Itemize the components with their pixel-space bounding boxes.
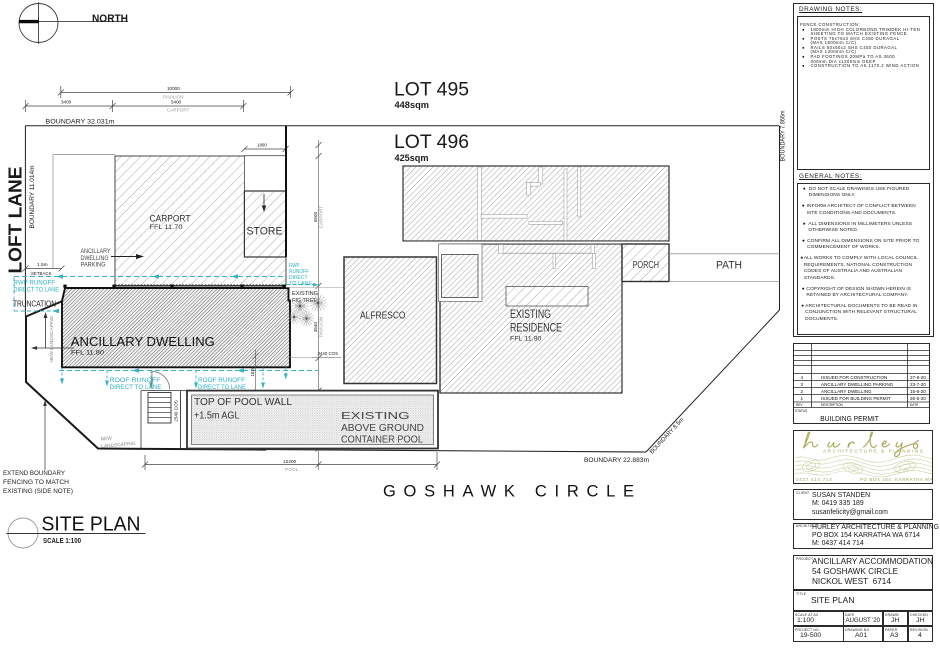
- svg-text:TOP OF POOL WALL: TOP OF POOL WALL: [194, 397, 292, 408]
- svg-text:ROOF RUNOFF: ROOF RUNOFF: [198, 378, 245, 384]
- svg-text:3400: 3400: [61, 100, 72, 105]
- svg-text:BUILDING PERMIT: BUILDING PERMIT: [820, 414, 879, 423]
- svg-text:3440 COS: 3440 COS: [318, 351, 339, 356]
- svg-text:FENCING TO MATCH: FENCING TO MATCH: [3, 479, 69, 486]
- svg-text:26-5-20: 26-5-20: [910, 396, 926, 401]
- svg-text:PARKING: PARKING: [81, 263, 106, 269]
- svg-text:3: 3: [801, 382, 804, 387]
- svg-text:SETBACK: SETBACK: [31, 271, 52, 276]
- svg-text:POOL: POOL: [285, 467, 299, 473]
- svg-text:EXISTING: EXISTING: [510, 309, 551, 321]
- svg-text:LOFT LANE: LOFT LANE: [6, 167, 26, 274]
- svg-text:5400: 5400: [171, 100, 182, 105]
- svg-text:PO BOX 154, KARRATHA WA 6714: PO BOX 154, KARRATHA WA 6714: [860, 477, 933, 482]
- svg-text:STORE: STORE: [247, 226, 283, 238]
- svg-text:15-6-20: 15-6-20: [910, 389, 926, 394]
- svg-text:CARPORT: CARPORT: [167, 107, 190, 112]
- svg-text:NORTH: NORTH: [92, 13, 128, 25]
- svg-text:1820: 1820: [250, 366, 255, 377]
- svg-text:EXTEND BOUNDARY: EXTEND BOUNDARY: [3, 470, 66, 477]
- svg-text:448sqm: 448sqm: [395, 100, 430, 110]
- svg-text:DIRECT TO LANE: DIRECT TO LANE: [110, 385, 162, 391]
- svg-text:BOUNDARY 11.014m: BOUNDARY 11.014m: [29, 166, 36, 229]
- svg-text:+1.5m AGL: +1.5m AGL: [194, 411, 240, 422]
- svg-text:DESCRIPTION: DESCRIPTION: [821, 403, 843, 407]
- svg-text:ANCILLARY DWELLING: ANCILLARY DWELLING: [71, 334, 215, 349]
- svg-text:PORCH: PORCH: [633, 259, 660, 271]
- svg-text:NEW: NEW: [100, 436, 112, 443]
- svg-text:DIRECT TO LANE: DIRECT TO LANE: [14, 288, 60, 294]
- svg-text:ISSUED FOR CONSTRUCTION: ISSUED FOR CONSTRUCTION: [821, 375, 887, 380]
- svg-text:BOUNDARY 7.866m: BOUNDARY 7.866m: [781, 110, 787, 161]
- svg-text:LOT 496: LOT 496: [394, 131, 469, 153]
- svg-text:EXISTING (SIDE NOTE): EXISTING (SIDE NOTE): [3, 488, 73, 495]
- svg-text:1.5m: 1.5m: [37, 262, 48, 268]
- svg-text:BOUNDARY 32.031m: BOUNDARY 32.031m: [46, 119, 115, 126]
- svg-text:ROOF RUNOFF: ROOF RUNOFF: [110, 378, 161, 384]
- svg-text:EXISTING: EXISTING: [292, 291, 318, 297]
- svg-text:TRUNCATION: TRUNCATION: [13, 300, 56, 309]
- svg-text:ISSUED FOR BUILDING PERMIT: ISSUED FOR BUILDING PERMIT: [821, 396, 891, 401]
- svg-text:GOSHAWK CIRCLE: GOSHAWK CIRCLE: [383, 483, 634, 501]
- svg-text:EXISTING: EXISTING: [341, 410, 410, 422]
- svg-text:STATUS: STATUS: [795, 409, 807, 413]
- svg-text:FFL 11.70: FFL 11.70: [150, 224, 183, 231]
- svg-text:DATE: DATE: [910, 403, 918, 407]
- svg-text:CONTAINER POOL: CONTAINER POOL: [341, 434, 423, 446]
- svg-text:12200: 12200: [283, 459, 297, 465]
- svg-text:CARPORT: CARPORT: [319, 206, 324, 229]
- svg-text:PATH: PATH: [716, 260, 742, 272]
- svg-text:REV: REV: [796, 403, 803, 407]
- svg-text:BOUNDARY 8.5m: BOUNDARY 8.5m: [649, 417, 685, 455]
- svg-text:BOUNDARY 22.883m: BOUNDARY 22.883m: [584, 457, 649, 464]
- svg-text:ANCILLARY DWELLING PARKING: ANCILLARY DWELLING PARKING: [821, 382, 894, 387]
- svg-text:27-8-20: 27-8-20: [910, 375, 926, 380]
- svg-text:FFL 11.90: FFL 11.90: [510, 336, 542, 343]
- svg-text:TO LANE: TO LANE: [289, 281, 312, 287]
- svg-text:ANCILLARY: ANCILLARY: [81, 249, 111, 255]
- svg-text:0437 414 714: 0437 414 714: [796, 477, 832, 482]
- svg-text:PAVILION: PAVILION: [319, 317, 324, 338]
- svg-text:RWP RUNOFF: RWP RUNOFF: [14, 281, 56, 287]
- svg-text:ARCHITECTURE & PLANNING: ARCHITECTURE & PLANNING: [823, 448, 925, 453]
- svg-text:ANCILLARY DWELLING: ANCILLARY DWELLING: [821, 389, 872, 394]
- svg-text:4: 4: [801, 375, 804, 380]
- svg-text:CARPORT: CARPORT: [150, 214, 192, 224]
- svg-text:2540 COS: 2540 COS: [174, 400, 179, 421]
- svg-text:5500: 5500: [313, 211, 318, 222]
- svg-text:NEW LANDSCAPING: NEW LANDSCAPING: [49, 315, 55, 362]
- svg-text:3540: 3540: [313, 321, 318, 332]
- svg-text:ABOVE GROUND: ABOVE GROUND: [341, 422, 424, 434]
- svg-text:2: 2: [801, 389, 804, 394]
- svg-text:10000: 10000: [167, 86, 180, 91]
- svg-text:1: 1: [801, 396, 804, 401]
- svg-text:DWELLING: DWELLING: [81, 256, 109, 262]
- svg-text:SCALE 1:100: SCALE 1:100: [43, 538, 81, 545]
- svg-text:FFL 11.80: FFL 11.80: [71, 350, 104, 357]
- svg-text:RESIDENCE: RESIDENCE: [510, 323, 562, 335]
- svg-text:SITE PLAN: SITE PLAN: [42, 513, 141, 536]
- svg-text:ALFRESCO: ALFRESCO: [360, 311, 406, 322]
- svg-text:23-7-20: 23-7-20: [910, 382, 926, 387]
- svg-text:425sqm: 425sqm: [395, 153, 429, 163]
- svg-text:LOT 495: LOT 495: [394, 79, 469, 101]
- svg-text:1800: 1800: [257, 143, 267, 148]
